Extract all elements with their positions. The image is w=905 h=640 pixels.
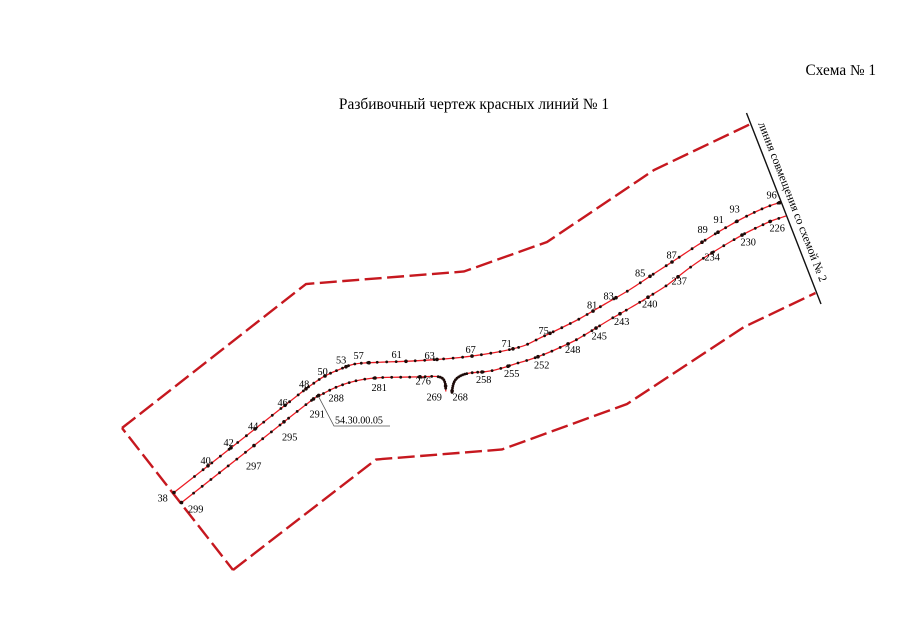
- svg-text:281: 281: [372, 383, 387, 394]
- svg-text:269: 269: [427, 393, 442, 404]
- svg-text:85: 85: [635, 269, 645, 280]
- svg-text:299: 299: [188, 505, 203, 516]
- svg-text:245: 245: [592, 332, 607, 343]
- svg-text:237: 237: [672, 277, 687, 288]
- svg-text:48: 48: [299, 380, 309, 391]
- svg-text:89: 89: [698, 225, 708, 236]
- svg-text:53: 53: [336, 356, 346, 367]
- svg-text:93: 93: [730, 205, 740, 216]
- svg-text:40: 40: [201, 456, 211, 467]
- svg-text:50: 50: [318, 367, 328, 378]
- svg-text:67: 67: [466, 345, 476, 356]
- svg-text:288: 288: [329, 394, 344, 405]
- svg-text:248: 248: [565, 345, 580, 356]
- svg-text:291: 291: [310, 410, 325, 421]
- svg-text:42: 42: [224, 438, 234, 449]
- svg-text:252: 252: [534, 361, 549, 372]
- svg-text:Схема № 1: Схема № 1: [806, 62, 877, 79]
- svg-text:268: 268: [453, 393, 468, 404]
- svg-text:96: 96: [767, 191, 777, 202]
- svg-text:71: 71: [502, 339, 512, 350]
- svg-text:226: 226: [770, 224, 785, 235]
- svg-text:61: 61: [392, 350, 402, 361]
- svg-text:87: 87: [667, 251, 677, 262]
- svg-text:255: 255: [504, 369, 519, 380]
- svg-text:230: 230: [741, 238, 756, 249]
- svg-text:297: 297: [246, 462, 261, 473]
- svg-text:276: 276: [416, 377, 431, 388]
- svg-text:83: 83: [604, 292, 614, 303]
- svg-text:75: 75: [539, 326, 549, 337]
- svg-text:44: 44: [248, 421, 258, 432]
- svg-text:57: 57: [354, 351, 364, 362]
- svg-text:240: 240: [642, 300, 657, 311]
- svg-text:91: 91: [714, 215, 724, 226]
- svg-text:295: 295: [282, 433, 297, 444]
- svg-text:Разбивочный чертеж красных лин: Разбивочный чертеж красных линий № 1: [339, 96, 609, 113]
- svg-text:81: 81: [587, 301, 597, 312]
- svg-text:54.30.00.05: 54.30.00.05: [335, 416, 383, 427]
- svg-text:38: 38: [158, 494, 168, 505]
- svg-text:243: 243: [614, 317, 629, 328]
- svg-text:258: 258: [476, 375, 491, 386]
- svg-text:234: 234: [705, 253, 720, 264]
- svg-text:46: 46: [278, 398, 288, 409]
- svg-text:63: 63: [425, 351, 435, 362]
